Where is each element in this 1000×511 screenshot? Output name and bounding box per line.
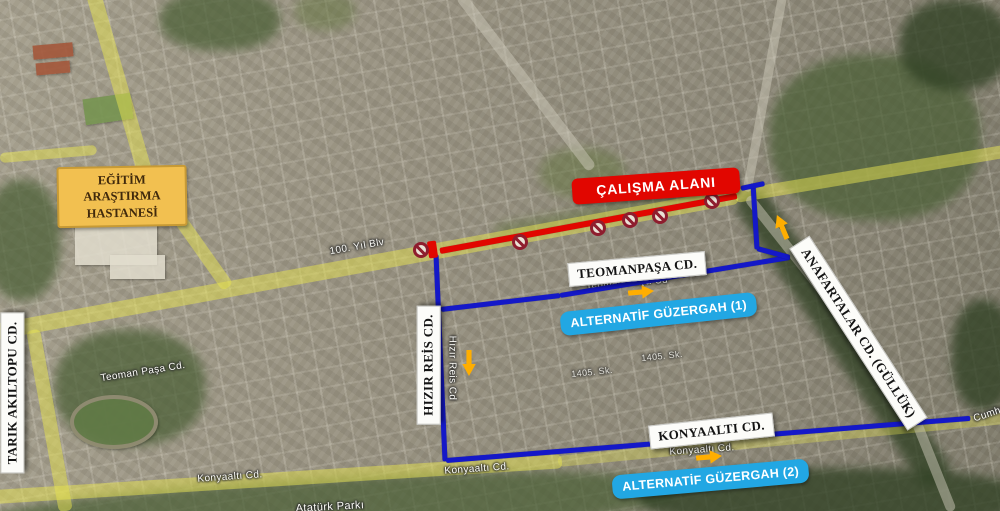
no-entry-icon xyxy=(652,208,668,224)
no-entry-icon xyxy=(622,212,638,228)
vegetation-patch xyxy=(952,300,1000,410)
hospital-label-line1: EĞİTİM ARAŞTIRMA xyxy=(83,173,160,204)
no-entry-icon xyxy=(413,242,429,258)
street-name: Hızır Reis Cd xyxy=(447,336,458,401)
no-entry-icon xyxy=(590,220,606,236)
stadium xyxy=(70,395,158,449)
hospital-label: EĞİTİM ARAŞTIRMA HASTANESİ xyxy=(56,165,187,228)
hospital-label-line2: HASTANESİ xyxy=(86,205,158,220)
no-entry-icon xyxy=(512,234,528,250)
vegetation-patch xyxy=(295,0,355,30)
hospital-building xyxy=(110,255,165,279)
vegetation-patch xyxy=(160,0,280,50)
detour-map: 100. Yıl Blv Teoman Paşa Cd. Teoman Paşa… xyxy=(0,0,1000,511)
vegetation-patch xyxy=(0,180,60,300)
road-label-hizir-reis: HIZIR REİS CD. xyxy=(417,305,441,424)
road-label-tarik-akiltopu: TARIK AKILTOPU CD. xyxy=(0,313,24,474)
vegetation-patch xyxy=(900,0,1000,90)
